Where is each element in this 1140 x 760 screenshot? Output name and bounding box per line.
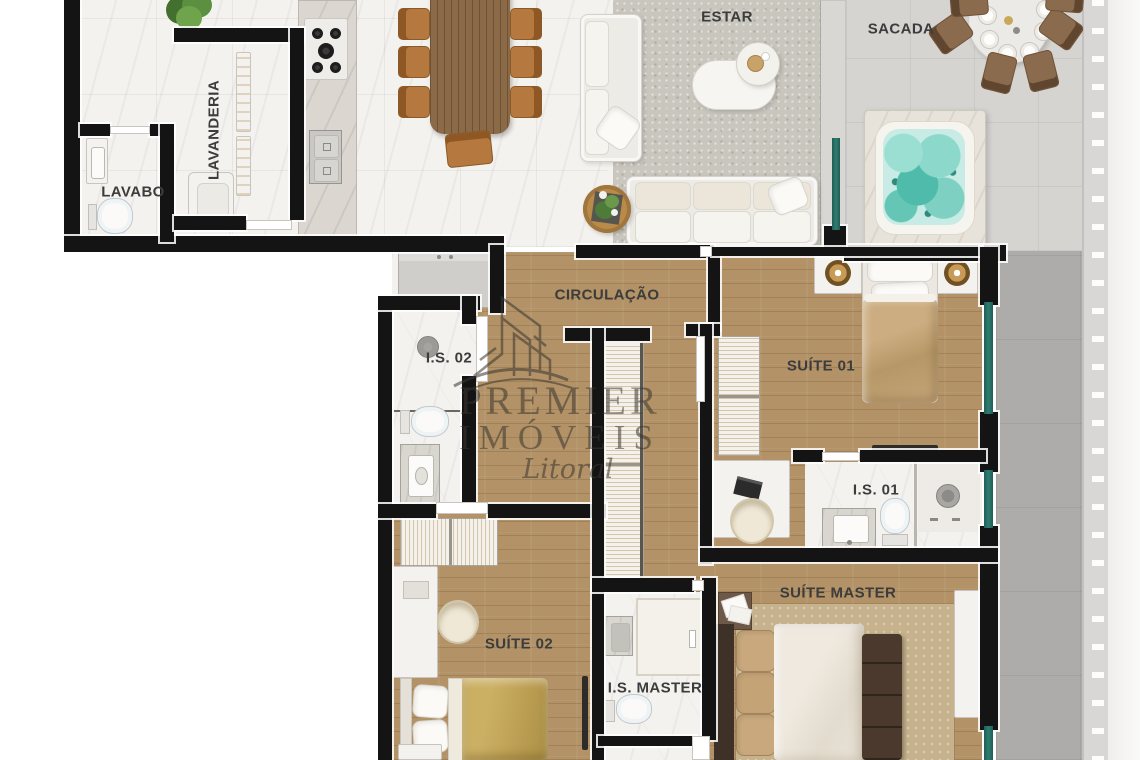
room-label-estar: ESTAR: [701, 9, 753, 26]
door-opening: [110, 126, 150, 134]
wall-segment: [598, 736, 696, 746]
table-lamp: [944, 260, 970, 286]
wall-segment: [488, 504, 606, 518]
door-opening: [692, 736, 710, 760]
door-leaf: [696, 336, 705, 402]
brand-watermark: PREMIER IMÓVEIS Litoral: [450, 290, 674, 485]
dining-chair: [510, 8, 542, 40]
window-glass: [984, 302, 993, 414]
room-label-lavabo: LAVABO: [101, 184, 165, 201]
shower-head: [936, 484, 960, 508]
plate: [980, 30, 999, 49]
door-jamb: [692, 580, 704, 591]
floor-plan: ESTAR SACADA LAVABO LAVANDERIA CIRCULAÇÃ…: [0, 0, 1140, 760]
dining-table: [430, 0, 510, 134]
wall-segment: [793, 450, 823, 462]
table-centerpiece: [1013, 27, 1020, 34]
balcony-glass-door: [832, 138, 840, 230]
door-jamb: [700, 246, 712, 257]
suite02-wardrobe: [400, 518, 498, 566]
is01-toilet: [880, 498, 910, 534]
table-lamp: [825, 260, 851, 286]
side-table-plant: [583, 185, 631, 235]
ism-shower: [636, 598, 704, 676]
wall-segment: [576, 245, 714, 258]
suite02-desk-chair: [437, 600, 479, 644]
right-boundary-ticks: [1092, 0, 1104, 760]
wall-segment: [712, 247, 982, 256]
door-opening: [246, 220, 292, 230]
cooktop: [304, 18, 348, 80]
wall-segment: [980, 412, 998, 472]
wall-segment: [700, 548, 998, 562]
dining-chair: [398, 86, 430, 118]
wall-segment: [80, 124, 110, 136]
right-boundary-edge: [1082, 0, 1084, 760]
room-label-suite01: SUÍTE 01: [787, 358, 855, 375]
master-bed: [714, 624, 864, 760]
suite01-blanket: [862, 298, 938, 403]
suite02-tv: [582, 676, 588, 750]
suite02-blanket: [462, 678, 548, 760]
master-mattress: [774, 624, 864, 760]
window-glass: [984, 470, 993, 528]
wall-segment: [702, 578, 716, 740]
room-label-is01: I.S. 01: [853, 482, 899, 499]
suite02-side-table: [398, 744, 442, 760]
watermark-line3: Litoral: [521, 454, 613, 485]
room-label-sacada: SACADA: [868, 21, 935, 38]
wall-segment: [378, 296, 392, 760]
lavabo-toilet-tank: [88, 204, 97, 230]
room-label-suite-master: SUÍTE MASTER: [780, 585, 896, 602]
wall-segment: [980, 247, 998, 305]
suite01-bed: [862, 250, 938, 403]
coffee-table-round: [736, 42, 780, 86]
wall-segment: [290, 28, 304, 220]
room-label-is-master: I.S. MASTER: [608, 680, 702, 697]
jacuzzi: [864, 110, 986, 246]
wall-segment: [592, 578, 694, 592]
kitchen-sink: [309, 130, 342, 184]
watermark-line2: IMÓVEIS: [459, 417, 661, 457]
is01-shower: [918, 462, 980, 532]
wall-segment: [860, 450, 986, 462]
suite02-desk: [392, 566, 438, 678]
dining-chair-head: [444, 130, 493, 169]
is01-toilet-tank: [882, 534, 908, 546]
wall-segment: [174, 216, 246, 230]
ism-toilet: [616, 694, 652, 724]
lavabo-sink: [86, 138, 108, 184]
exterior-ground: [996, 251, 1088, 760]
wall-segment: [378, 504, 436, 518]
table-centerpiece: [1004, 16, 1013, 25]
wall-segment: [64, 0, 80, 252]
wall-segment: [64, 236, 504, 252]
door-opening: [822, 452, 860, 461]
lavabo-toilet: [97, 198, 133, 234]
dining-chair: [510, 86, 542, 118]
wall-segment: [708, 250, 720, 330]
room-label-suite02: SUÍTE 02: [485, 636, 553, 653]
is01-vanity: [822, 508, 876, 548]
is02-vanity: [400, 444, 440, 506]
is01-shower-glass: [914, 462, 917, 548]
window-glass: [984, 726, 993, 760]
suite01-wardrobe: [718, 336, 760, 456]
wall-segment: [174, 28, 304, 42]
ism-vanity: [605, 616, 633, 656]
dining-chair: [398, 46, 430, 78]
watermark-line1: PREMIER: [459, 378, 660, 423]
dining-chair: [398, 8, 430, 40]
laundry-shelf: [236, 136, 251, 196]
laundry-shelf: [236, 52, 251, 132]
ism-toilet-tank: [605, 700, 615, 722]
jacuzzi-water: [883, 129, 965, 225]
is02-toilet-tank: [400, 410, 410, 434]
dining-chair: [510, 46, 542, 78]
room-label-lavanderia: LAVANDERIA: [206, 80, 223, 180]
master-bench: [862, 634, 902, 760]
suite01-desk-chair: [730, 498, 774, 544]
door-opening: [436, 502, 488, 514]
is02-toilet: [411, 406, 449, 437]
